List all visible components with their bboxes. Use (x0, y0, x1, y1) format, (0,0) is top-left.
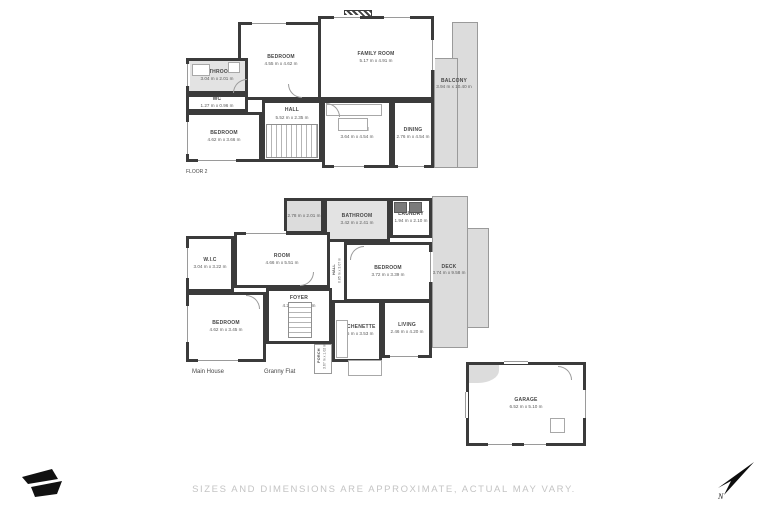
room-dims: 2.78 m x 2.01 m (288, 213, 321, 220)
room-name: W.I.C (194, 257, 227, 265)
window (185, 122, 190, 154)
granny-flat-caption: Granny Flat (264, 369, 295, 375)
window (246, 231, 286, 236)
ground-hall-small-label: HALL 0.85 m x 3.07 m (332, 248, 342, 292)
room-name: BEDROOM (372, 265, 405, 273)
floor2-family-room: FAMILY ROOM 5.17 m x 4.91 m (318, 16, 434, 100)
brand-logo-icon (16, 466, 68, 506)
room-dims: 1.27 m x 0.96 m (201, 103, 234, 110)
staircase (266, 124, 318, 158)
room-dims: 4.55 m x 4.62 m (265, 61, 298, 68)
ground-store-room: 2.78 m x 2.01 m (284, 198, 324, 234)
kitchen-island (338, 118, 368, 131)
balcony-area-lower (434, 58, 458, 168)
kitchenette-counter (336, 320, 348, 358)
floor2-caption: FLOOR 2 (186, 169, 207, 175)
room-name: BATHROOM (341, 213, 374, 221)
staircase (288, 302, 312, 338)
window (488, 442, 512, 447)
room-dims: 2.46 m x 4.20 m (391, 329, 424, 336)
ground-living: LIVING 2.46 m x 4.20 m (382, 300, 432, 358)
washing-machine (394, 202, 407, 213)
room-name: LIVING (391, 322, 424, 330)
room-dims: 3.42 m x 2.41 m (341, 220, 374, 227)
ground-room: ROOM 4.66 m x 5.51 m (234, 232, 330, 288)
floor2-bedroom-left: BEDROOM 4.62 m x 3.66 m (186, 112, 262, 162)
window (524, 442, 546, 447)
room-dims: 4.62 m x 3.66 m (208, 137, 241, 144)
room-dims: 0.85 m x 3.07 m (337, 248, 342, 292)
room-dims: 4.62 m x 3.45 m (210, 327, 243, 334)
window (185, 64, 190, 86)
room-name: DINING (397, 127, 430, 135)
north-label: N (718, 492, 723, 501)
bathtub (192, 64, 210, 76)
window (185, 248, 190, 278)
room-dims: 4.66 m x 5.51 m (266, 260, 299, 267)
room-dims: 3.64 m x 4.54 m (341, 134, 374, 141)
room-name: GARAGE (510, 397, 543, 405)
room-dims: 3.94 m x 10.40 m (428, 84, 480, 89)
room-name: BEDROOM (208, 130, 241, 138)
window (430, 40, 435, 70)
dryer (409, 202, 422, 213)
room-name: ROOM (266, 253, 299, 261)
room-dims: 2.76 m x 4.54 m (397, 134, 430, 141)
room-dims: 1.94 m x 2.10 m (395, 218, 428, 225)
window (463, 392, 468, 418)
ground-wic: W.I.C 3.04 m x 3.22 m (186, 236, 234, 292)
window (198, 158, 236, 163)
deck-area-extension (467, 228, 489, 328)
room-dims: 3.04 m x 3.22 m (194, 264, 227, 271)
floor2-dining: DINING 2.76 m x 4.54 m (392, 100, 434, 168)
floor2-bedroom-top: BEDROOM 4.55 m x 4.62 m (238, 22, 324, 100)
window (334, 15, 360, 20)
water-heater (550, 418, 565, 433)
balcony-label: BALCONY 3.94 m x 10.40 m (428, 78, 480, 89)
window (185, 306, 190, 342)
room-dims: 3.04 m x 2.01 m (201, 76, 234, 83)
window (198, 358, 238, 363)
room-dims: 6.52 m x 5.10 m (510, 404, 543, 411)
entry-steps (348, 360, 382, 376)
room-dims: 3.67 m x 1.02 m (322, 336, 327, 376)
toilet (228, 62, 240, 73)
window (334, 164, 364, 169)
main-house-caption: Main House (192, 369, 224, 375)
window (252, 21, 286, 26)
ground-bathroom: BATHROOM 3.42 m x 2.41 m (324, 198, 390, 242)
floor2-wc: WC 1.27 m x 0.96 m (186, 94, 248, 112)
room-dims: 3.72 m x 3.39 m (372, 272, 405, 279)
disclaimer-text: SIZES AND DIMENSIONS ARE APPROXIMATE, AC… (0, 484, 768, 495)
room-name: BEDROOM (210, 320, 243, 328)
room-name: BEDROOM (265, 54, 298, 62)
ground-porch-label: PORCH 3.67 m x 1.02 m (317, 336, 327, 376)
window (398, 164, 424, 169)
room-name: WC (201, 96, 234, 104)
window (390, 354, 418, 359)
window (428, 252, 433, 282)
room-dims: 5.17 m x 4.91 m (358, 58, 395, 65)
floorplan-canvas: BALCONY 3.94 m x 10.40 m BEDROOM 4.55 m … (0, 0, 768, 512)
window (384, 15, 410, 20)
window (504, 359, 528, 364)
window (583, 390, 588, 418)
room-name: HALL (276, 107, 309, 115)
room-name: FAMILY ROOM (358, 51, 395, 59)
compass: N (712, 458, 760, 506)
room-dims: 5.52 m x 2.35 m (276, 115, 309, 122)
